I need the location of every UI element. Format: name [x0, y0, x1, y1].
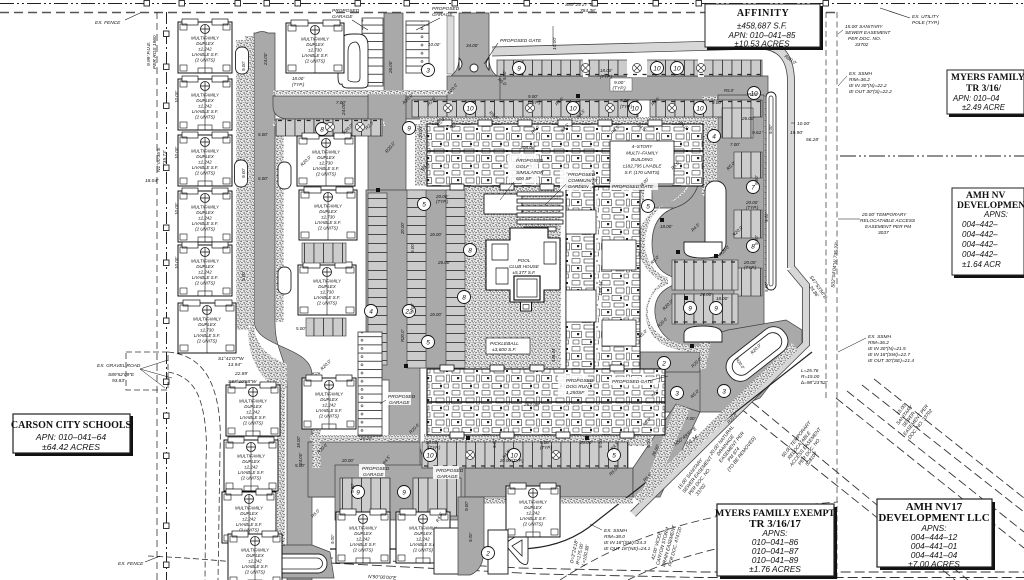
svg-text:IE IN 30”(N)=21.5: IE IN 30”(N)=21.5 [868, 346, 906, 352]
svg-text:9.00’: 9.00’ [241, 60, 246, 71]
svg-text:7.00’: 7.00’ [446, 124, 457, 129]
svg-text:9.00’: 9.00’ [468, 532, 473, 542]
svg-text:8: 8 [468, 248, 472, 255]
svg-text:9: 9 [714, 306, 718, 313]
svg-text:∆=98°23’52”: ∆=98°23’52” [801, 380, 828, 386]
svg-text:8: 8 [462, 295, 466, 302]
svg-text:26.00’: 26.00’ [429, 312, 443, 317]
svg-text:22.89’: 22.89’ [234, 371, 249, 377]
svg-text:PROPOSED: PROPOSED [388, 394, 416, 400]
svg-text:9: 9 [407, 126, 411, 133]
svg-text:1,250SF: 1,250SF [566, 390, 585, 396]
svg-text:93.83’: 93.83’ [112, 378, 126, 384]
svg-text:10.00’: 10.00’ [174, 90, 179, 103]
svg-text:9.00’: 9.00’ [646, 438, 651, 448]
svg-text:POLE (TYP.): POLE (TYP.) [912, 20, 940, 26]
svg-text:GARAGE: GARAGE [432, 12, 453, 18]
svg-text:EASEMENT PER PM: EASEMENT PER PM [865, 224, 911, 230]
svg-text:EX. FENCE: EX. FENCE [95, 20, 121, 26]
svg-text:9.61’: 9.61’ [752, 130, 763, 136]
svg-text:9: 9 [402, 490, 406, 497]
svg-text:PROPOSED GATE: PROPOSED GATE [612, 379, 654, 385]
svg-text:2: 2 [485, 551, 490, 558]
svg-text:9.00’: 9.00’ [754, 174, 759, 185]
svg-text:R5.0’: R5.0’ [724, 88, 735, 93]
svg-text:S89’52’09”E: S89’52’09”E [108, 372, 135, 378]
svg-text:10: 10 [569, 106, 577, 113]
svg-text:9.00’: 9.00’ [464, 500, 469, 511]
svg-text:N1°00’35”E: N1°00’35”E [156, 147, 162, 172]
svg-text:10.00’: 10.00’ [428, 42, 441, 47]
svg-text:(TYP.): (TYP.) [436, 199, 449, 204]
svg-text:IE OUT 30”(S)=22.2: IE OUT 30”(S)=22.2 [849, 89, 892, 95]
svg-text:10.00’: 10.00’ [174, 202, 179, 215]
svg-text:RIM=36.2: RIM=36.2 [849, 77, 870, 83]
svg-text:TR 3/16/: TR 3/16/ [966, 84, 1001, 94]
svg-text:R20.0’: R20.0’ [400, 329, 405, 342]
svg-text:±182,795 LIVABLE: ±182,795 LIVABLE [623, 164, 663, 169]
svg-text:MYERS FAMILY: MYERS FAMILY [951, 73, 1024, 83]
svg-text:R=15.00: R=15.00 [801, 374, 820, 380]
svg-text:4–STORY: 4–STORY [632, 144, 654, 149]
svg-text:9.00’: 9.00’ [712, 100, 723, 105]
svg-text:9.00’: 9.00’ [528, 94, 539, 99]
svg-text:GARAGE: GARAGE [389, 400, 410, 406]
svg-text:7.00’: 7.00’ [686, 416, 696, 421]
svg-text:EX. SSMH: EX. SSMH [604, 528, 627, 534]
svg-text:POOL: POOL [518, 258, 531, 263]
svg-text:S89°24’27” E: S89°24’27” E [565, 2, 594, 8]
svg-text:GOLF: GOLF [516, 164, 530, 170]
svg-text:10: 10 [631, 106, 639, 113]
svg-text:(TYP.): (TYP.) [620, 104, 633, 109]
svg-text:7.00’: 7.00’ [730, 142, 741, 147]
svg-text:(TYP.): (TYP.) [528, 100, 541, 105]
svg-text:4: 4 [369, 309, 373, 316]
svg-text:9.99’ P.U.E.: 9.99’ P.U.E. [146, 41, 152, 66]
svg-text:CLUB HOUSE: CLUB HOUSE [509, 264, 540, 269]
svg-text:9.00’: 9.00’ [598, 438, 603, 448]
svg-text:IE IN 18”(SW)=24.3: IE IN 18”(SW)=24.3 [604, 540, 646, 546]
svg-text:GARAGE: GARAGE [332, 14, 353, 20]
svg-text:PROPOSED: PROPOSED [432, 6, 460, 12]
svg-text:S.F. (170 UNITS): S.F. (170 UNITS) [625, 170, 660, 175]
svg-text:9: 9 [356, 490, 360, 497]
svg-text:4: 4 [712, 134, 716, 141]
svg-text:±458,687 S.F.: ±458,687 S.F. [737, 22, 787, 31]
svg-text:±10.53 ACRES: ±10.53 ACRES [734, 40, 790, 49]
svg-text:34.00’: 34.00’ [466, 43, 479, 48]
svg-text:±64.42 ACRES: ±64.42 ACRES [42, 442, 100, 452]
svg-text:PER DOC. NO.: PER DOC. NO. [848, 36, 881, 42]
svg-text:±1.76 ACRES: ±1.76 ACRES [749, 564, 801, 574]
svg-text:10.00’: 10.00’ [797, 121, 811, 127]
svg-text:600 SF: 600 SF [516, 176, 533, 182]
svg-text:±1.64 ACR: ±1.64 ACR [962, 260, 1001, 269]
svg-text:56.28’: 56.28’ [806, 137, 820, 143]
svg-text:10: 10 [673, 66, 681, 73]
svg-text:EX. GRAVEL ROAD: EX. GRAVEL ROAD [97, 363, 141, 369]
svg-text:146.44’: 146.44’ [551, 347, 556, 362]
svg-text:APN: 010–04: APN: 010–04 [952, 94, 1000, 103]
svg-text:9.00’: 9.00’ [330, 534, 335, 544]
svg-text:9.00’: 9.00’ [764, 282, 769, 292]
svg-text:3: 3 [675, 391, 679, 398]
svg-text:9.00’: 9.00’ [410, 242, 415, 253]
svg-text:RIM=36.2: RIM=36.2 [868, 340, 889, 346]
svg-text:2: 2 [661, 361, 666, 368]
svg-text:20.00’: 20.00’ [341, 458, 355, 463]
svg-text:7.00’: 7.00’ [336, 100, 347, 105]
svg-text:10: 10 [696, 106, 704, 113]
svg-text:19.90’: 19.90’ [790, 130, 804, 136]
svg-text:26.00’: 26.00’ [741, 116, 755, 121]
svg-text:9.00’: 9.00’ [492, 438, 497, 448]
svg-text:18.00’: 18.00’ [292, 76, 305, 81]
svg-text:26.00’: 26.00’ [699, 292, 713, 297]
svg-text:AMH NV: AMH NV [966, 191, 1005, 201]
svg-text:18.00’: 18.00’ [296, 435, 301, 448]
svg-text:PER ROS 1960: PER ROS 1960 [152, 35, 158, 69]
svg-text:8: 8 [320, 127, 324, 134]
svg-text:EX. SSMH: EX. SSMH [849, 71, 872, 77]
svg-text:18.00’: 18.00’ [716, 296, 729, 301]
svg-text:±2.49 ACRE: ±2.49 ACRE [962, 103, 1006, 112]
svg-text:APN: 010–041–64: APN: 010–041–64 [35, 432, 106, 442]
svg-text:PROPOSED GATE: PROPOSED GATE [612, 184, 654, 190]
svg-text:33702: 33702 [855, 42, 869, 48]
svg-text:DOG RUN: DOG RUN [566, 384, 589, 390]
svg-text:IE IN 18”(SW)=22.7: IE IN 18”(SW)=22.7 [868, 352, 910, 358]
svg-text:262.08’: 262.08’ [523, 402, 541, 408]
svg-text:20.00’(TYP.): 20.00’(TYP.) [499, 458, 524, 463]
svg-text:PROPOSED: PROPOSED [332, 8, 360, 14]
svg-text:004–442–: 004–442– [962, 220, 998, 229]
svg-text:APNS:: APNS: [983, 210, 1008, 219]
svg-text:S87°10’58”W: S87°10’58”W [228, 379, 257, 385]
svg-text:9.00’: 9.00’ [614, 80, 625, 86]
svg-text:9.00’: 9.00’ [241, 167, 246, 178]
svg-text:26.00’: 26.00’ [388, 60, 393, 74]
svg-text:784.38’: 784.38’ [580, 8, 597, 14]
svg-text:PICKLEBALL: PICKLEBALL [490, 341, 519, 347]
svg-text:AFFINITY: AFFINITY [737, 8, 790, 19]
svg-text:20.00’: 20.00’ [400, 221, 405, 235]
svg-text:9.00’: 9.00’ [620, 98, 631, 103]
svg-text:10: 10 [653, 66, 661, 73]
svg-text:18.00’: 18.00’ [660, 224, 673, 229]
svg-text:S1°41’07”W: S1°41’07”W [218, 356, 244, 362]
svg-text:3037: 3037 [878, 230, 889, 236]
svg-text:9: 9 [517, 66, 521, 73]
svg-text:MULTI–FAMILY: MULTI–FAMILY [626, 151, 659, 156]
svg-text:5: 5 [426, 340, 430, 347]
svg-text:146.44’: 146.44’ [598, 279, 604, 296]
svg-text:GARDEN: GARDEN [568, 184, 589, 190]
svg-text:3: 3 [426, 68, 430, 75]
svg-text:GARAGE: GARAGE [363, 472, 384, 478]
svg-text:9.00’: 9.00’ [764, 212, 769, 222]
svg-text:5: 5 [422, 202, 426, 209]
svg-text:10.00’: 10.00’ [174, 256, 179, 269]
svg-text:IE IN 30”(N)=22.2: IE IN 30”(N)=22.2 [849, 83, 887, 89]
svg-text:26.00’: 26.00’ [429, 232, 443, 237]
svg-text:GARAGE: GARAGE [437, 474, 458, 480]
svg-text:5: 5 [612, 453, 616, 460]
svg-text:18.04”: 18.04” [145, 178, 159, 184]
svg-text:9.00’: 9.00’ [350, 482, 355, 493]
svg-text:5.00’: 5.00’ [258, 176, 269, 181]
svg-text:SIMULATOR: SIMULATOR [516, 170, 544, 176]
svg-text:24.00’: 24.00’ [263, 52, 268, 66]
svg-text:9.00’: 9.00’ [754, 234, 759, 245]
svg-text:20.00’: 20.00’ [418, 125, 423, 139]
svg-text:26.00’: 26.00’ [359, 436, 373, 441]
svg-text:13.94”: 13.94” [228, 362, 242, 368]
svg-text:±7.00 ACRES: ±7.00 ACRES [908, 559, 960, 569]
svg-text:5.00’: 5.00’ [295, 463, 306, 468]
svg-text:IE OUT 18”(NE)=24.1: IE OUT 18”(NE)=24.1 [604, 546, 651, 552]
svg-text:(TYP.): (TYP.) [744, 265, 757, 270]
svg-text:5.00’: 5.00’ [258, 132, 269, 137]
svg-text:RIM=38.0: RIM=38.0 [604, 534, 625, 540]
svg-text:CARSON CITY SCHOOLS: CARSON CITY SCHOOLS [11, 420, 132, 431]
svg-text:PROPOSED: PROPOSED [436, 468, 464, 474]
svg-text:18.00’: 18.00’ [600, 68, 613, 73]
svg-text:20.00’: 20.00’ [579, 440, 593, 445]
svg-text:10: 10 [426, 453, 434, 460]
svg-text:(TYP.): (TYP.) [292, 82, 305, 87]
svg-text:9.00’: 9.00’ [241, 270, 246, 281]
svg-text:BUILDING: BUILDING [631, 157, 653, 162]
svg-text:9.00’: 9.00’ [410, 302, 415, 313]
svg-text:SEWER EASEMENT: SEWER EASEMENT [845, 30, 891, 36]
svg-text:EX. SSMH: EX. SSMH [868, 334, 891, 340]
svg-text:735.73’: 735.73’ [162, 149, 168, 166]
svg-text:20.00’ TEMPORARY: 20.00’ TEMPORARY [861, 212, 907, 218]
svg-text:004–442–: 004–442– [962, 230, 998, 239]
svg-text:EX. UTILITY: EX. UTILITY [912, 14, 940, 20]
svg-text:PROPOSED: PROPOSED [362, 466, 390, 472]
svg-text:COMMUNITY: COMMUNITY [568, 178, 598, 184]
svg-text:R5.0’: R5.0’ [748, 92, 760, 97]
svg-text:308.08’: 308.08’ [520, 145, 537, 151]
svg-text:9.00’: 9.00’ [768, 124, 773, 134]
svg-text:PROPOSED: PROPOSED [516, 158, 544, 164]
svg-text:PROPOSED: PROPOSED [568, 172, 596, 178]
svg-text:L=25.76: L=25.76 [801, 368, 819, 374]
svg-text:RELOCATABLE ACCESS: RELOCATABLE ACCESS [860, 218, 916, 224]
svg-text:5.00’: 5.00’ [296, 326, 307, 331]
svg-text:IE OUT 30”(SE)=21.4: IE OUT 30”(SE)=21.4 [868, 358, 914, 364]
svg-text:(TYP.): (TYP.) [613, 86, 627, 92]
svg-text:26.00’: 26.00’ [437, 260, 451, 265]
svg-text:10: 10 [466, 106, 474, 113]
svg-text:15.00’ SANITARY: 15.00’ SANITARY [845, 24, 883, 30]
svg-text:PROPOSED: PROPOSED [566, 378, 594, 384]
svg-text:PROPOSED GATE: PROPOSED GATE [500, 38, 542, 44]
svg-text:(TYP.): (TYP.) [540, 445, 553, 450]
svg-text:(TYP.): (TYP.) [600, 74, 613, 79]
svg-text:3: 3 [722, 389, 726, 396]
svg-text:9.00’: 9.00’ [502, 70, 507, 80]
svg-text:(TYP.): (TYP.) [746, 205, 759, 210]
svg-text:±5,377 S.F.: ±5,377 S.F. [512, 270, 536, 275]
svg-text:±3,600 S.F.: ±3,600 S.F. [492, 347, 517, 353]
svg-text:(TYP.): (TYP.) [428, 445, 441, 450]
svg-text:EX. FENCE: EX. FENCE [118, 561, 144, 567]
svg-text:004–442–: 004–442– [962, 250, 998, 259]
svg-text:9: 9 [688, 306, 692, 313]
svg-text:004–442–: 004–442– [962, 240, 998, 249]
svg-text:5: 5 [646, 204, 650, 211]
svg-text:10.00’: 10.00’ [174, 146, 179, 159]
